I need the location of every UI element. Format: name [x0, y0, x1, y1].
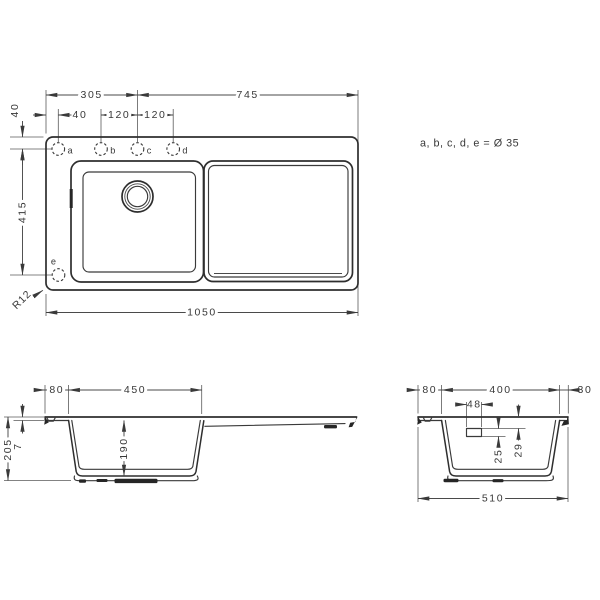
dim-29: 29: [513, 443, 525, 458]
dim-510: 510: [482, 493, 504, 505]
hole-diameter-note: a, b, c, d, e = Ø 35: [420, 138, 519, 150]
dim-1050: 1050: [187, 307, 217, 319]
overflow-opening: [467, 429, 482, 437]
dim-30: 30: [578, 384, 593, 396]
cross-section-view: 80 400 30 48 29 25 510: [407, 384, 592, 505]
dim-745: 745: [237, 89, 259, 101]
tap-hole-c: [131, 143, 144, 156]
bowl-inner-wall: [72, 421, 201, 470]
dim-cross-80: 80: [422, 384, 437, 396]
dim-305: 305: [81, 89, 103, 101]
dim-side-80: 80: [49, 384, 64, 396]
hole-label-e: e: [51, 257, 56, 267]
drainboard-inner-outline: [209, 166, 349, 278]
dim-25: 25: [493, 449, 505, 464]
sink-outline: [46, 137, 358, 290]
dim-40-top-offset: 40: [9, 103, 21, 118]
dim-120-bc: 120: [108, 109, 130, 121]
bowl-outer-wall: [69, 421, 204, 477]
hole-label-c: c: [147, 146, 152, 156]
drain-circle: [122, 181, 153, 212]
dim-400: 400: [489, 384, 511, 396]
side-profile: [44, 417, 357, 484]
drainboard-end-cap: [349, 417, 358, 428]
technical-drawing: a b c d e 305 745 40 120 120 40 415 R1: [0, 0, 600, 600]
dim-48: 48: [467, 399, 482, 411]
dim-40-hole-offset: 40: [73, 109, 88, 121]
dim-190: 190: [118, 437, 130, 459]
cross-dimensions: 80 400 30 48 29 25 510: [407, 384, 592, 505]
side-extension-lines: [4, 385, 202, 481]
overflow-slot-mark: [70, 189, 73, 208]
drawing-canvas: a b c d e 305 745 40 120 120 40 415 R1: [0, 0, 600, 600]
hole-label-d: d: [182, 146, 187, 156]
dim-205: 205: [2, 438, 14, 460]
bowl-outline: [71, 161, 204, 282]
drainboard-outline: [204, 161, 353, 282]
cross-extension-lines: [418, 385, 568, 502]
dim-r12: R12: [10, 288, 34, 312]
plan-dimensions: 305 745 40 120 120 40 415 R12 1050: [9, 89, 358, 319]
plan-view: a b c d e 305 745 40 120 120 40 415 R1: [9, 89, 519, 319]
dim-120-cd: 120: [144, 109, 166, 121]
cross-end-cap: [561, 417, 569, 426]
tap-hole-a: [52, 143, 65, 156]
hole-label-a: a: [68, 146, 74, 156]
tap-hole-e: [52, 269, 65, 282]
drainboard-underside: [205, 424, 345, 427]
side-section-view: 80 450 7 205 190: [2, 384, 358, 483]
side-dimensions: 80 450 7 205 190: [2, 384, 202, 481]
dim-450: 450: [124, 384, 146, 396]
dim-415: 415: [17, 201, 29, 223]
tap-hole-b: [95, 143, 108, 156]
tap-hole-d: [167, 143, 180, 156]
hole-label-b: b: [110, 146, 115, 156]
